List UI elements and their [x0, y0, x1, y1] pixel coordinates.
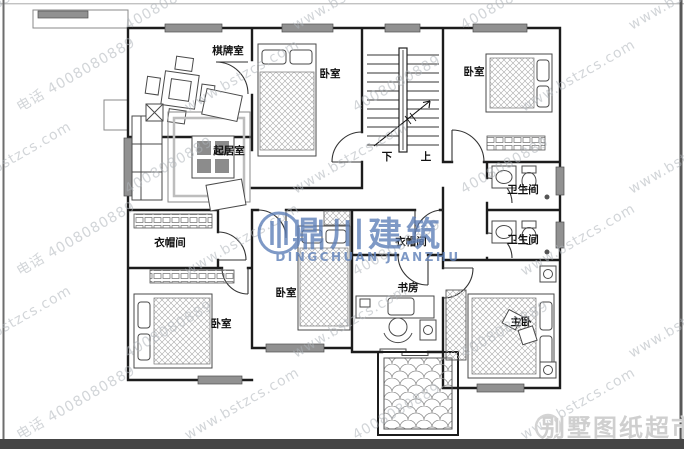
room-label-bedroom-bottom-middle: 卧室	[276, 286, 297, 299]
floor-plan-screenshot: 棋牌室 卧室 卧室 起居室 卫生间 卫生间 衣帽间 衣帽间 卧室 卧室 书房 主…	[0, 0, 684, 449]
left-border-line	[3, 0, 5, 449]
window	[385, 24, 420, 32]
nightstand	[540, 362, 556, 378]
room-label-bathroom-lower: 卫生间	[507, 233, 539, 246]
corner-logo: 别墅图纸超市 别墅图纸超市	[536, 414, 684, 443]
room-label-bedroom-top-middle: 卧室	[320, 67, 341, 80]
room-label-cloakroom-left: 衣帽间	[154, 236, 186, 249]
bottom-bar	[0, 439, 684, 449]
corner-logo-text: 别墅图纸超市	[540, 414, 684, 442]
floor-drain	[545, 195, 550, 200]
stair-label-down: 下	[382, 151, 393, 163]
room-label-bathroom-upper: 卫生间	[507, 183, 539, 196]
window	[556, 167, 564, 195]
cabinet	[420, 320, 436, 340]
center-logo-cn: 鼎川建筑	[292, 215, 444, 255]
window	[165, 24, 222, 32]
stair-label-up: 上	[421, 150, 432, 163]
right-border-line	[680, 0, 683, 449]
armchair	[206, 179, 246, 211]
room-label-chess-room: 棋牌室	[211, 44, 244, 57]
window	[473, 24, 527, 32]
roof-window	[38, 11, 88, 18]
room-label-bedroom-top-right: 卧室	[464, 65, 485, 78]
closet	[134, 214, 212, 228]
room-label-bedroom-bottom-left: 卧室	[211, 317, 232, 330]
center-logo-en: DINGCHUAN JIANZHU	[275, 250, 460, 264]
toilet	[522, 166, 536, 173]
toilet	[522, 221, 536, 228]
room-label-living-room: 起居室	[212, 144, 245, 157]
window	[477, 384, 524, 392]
window	[198, 376, 242, 384]
